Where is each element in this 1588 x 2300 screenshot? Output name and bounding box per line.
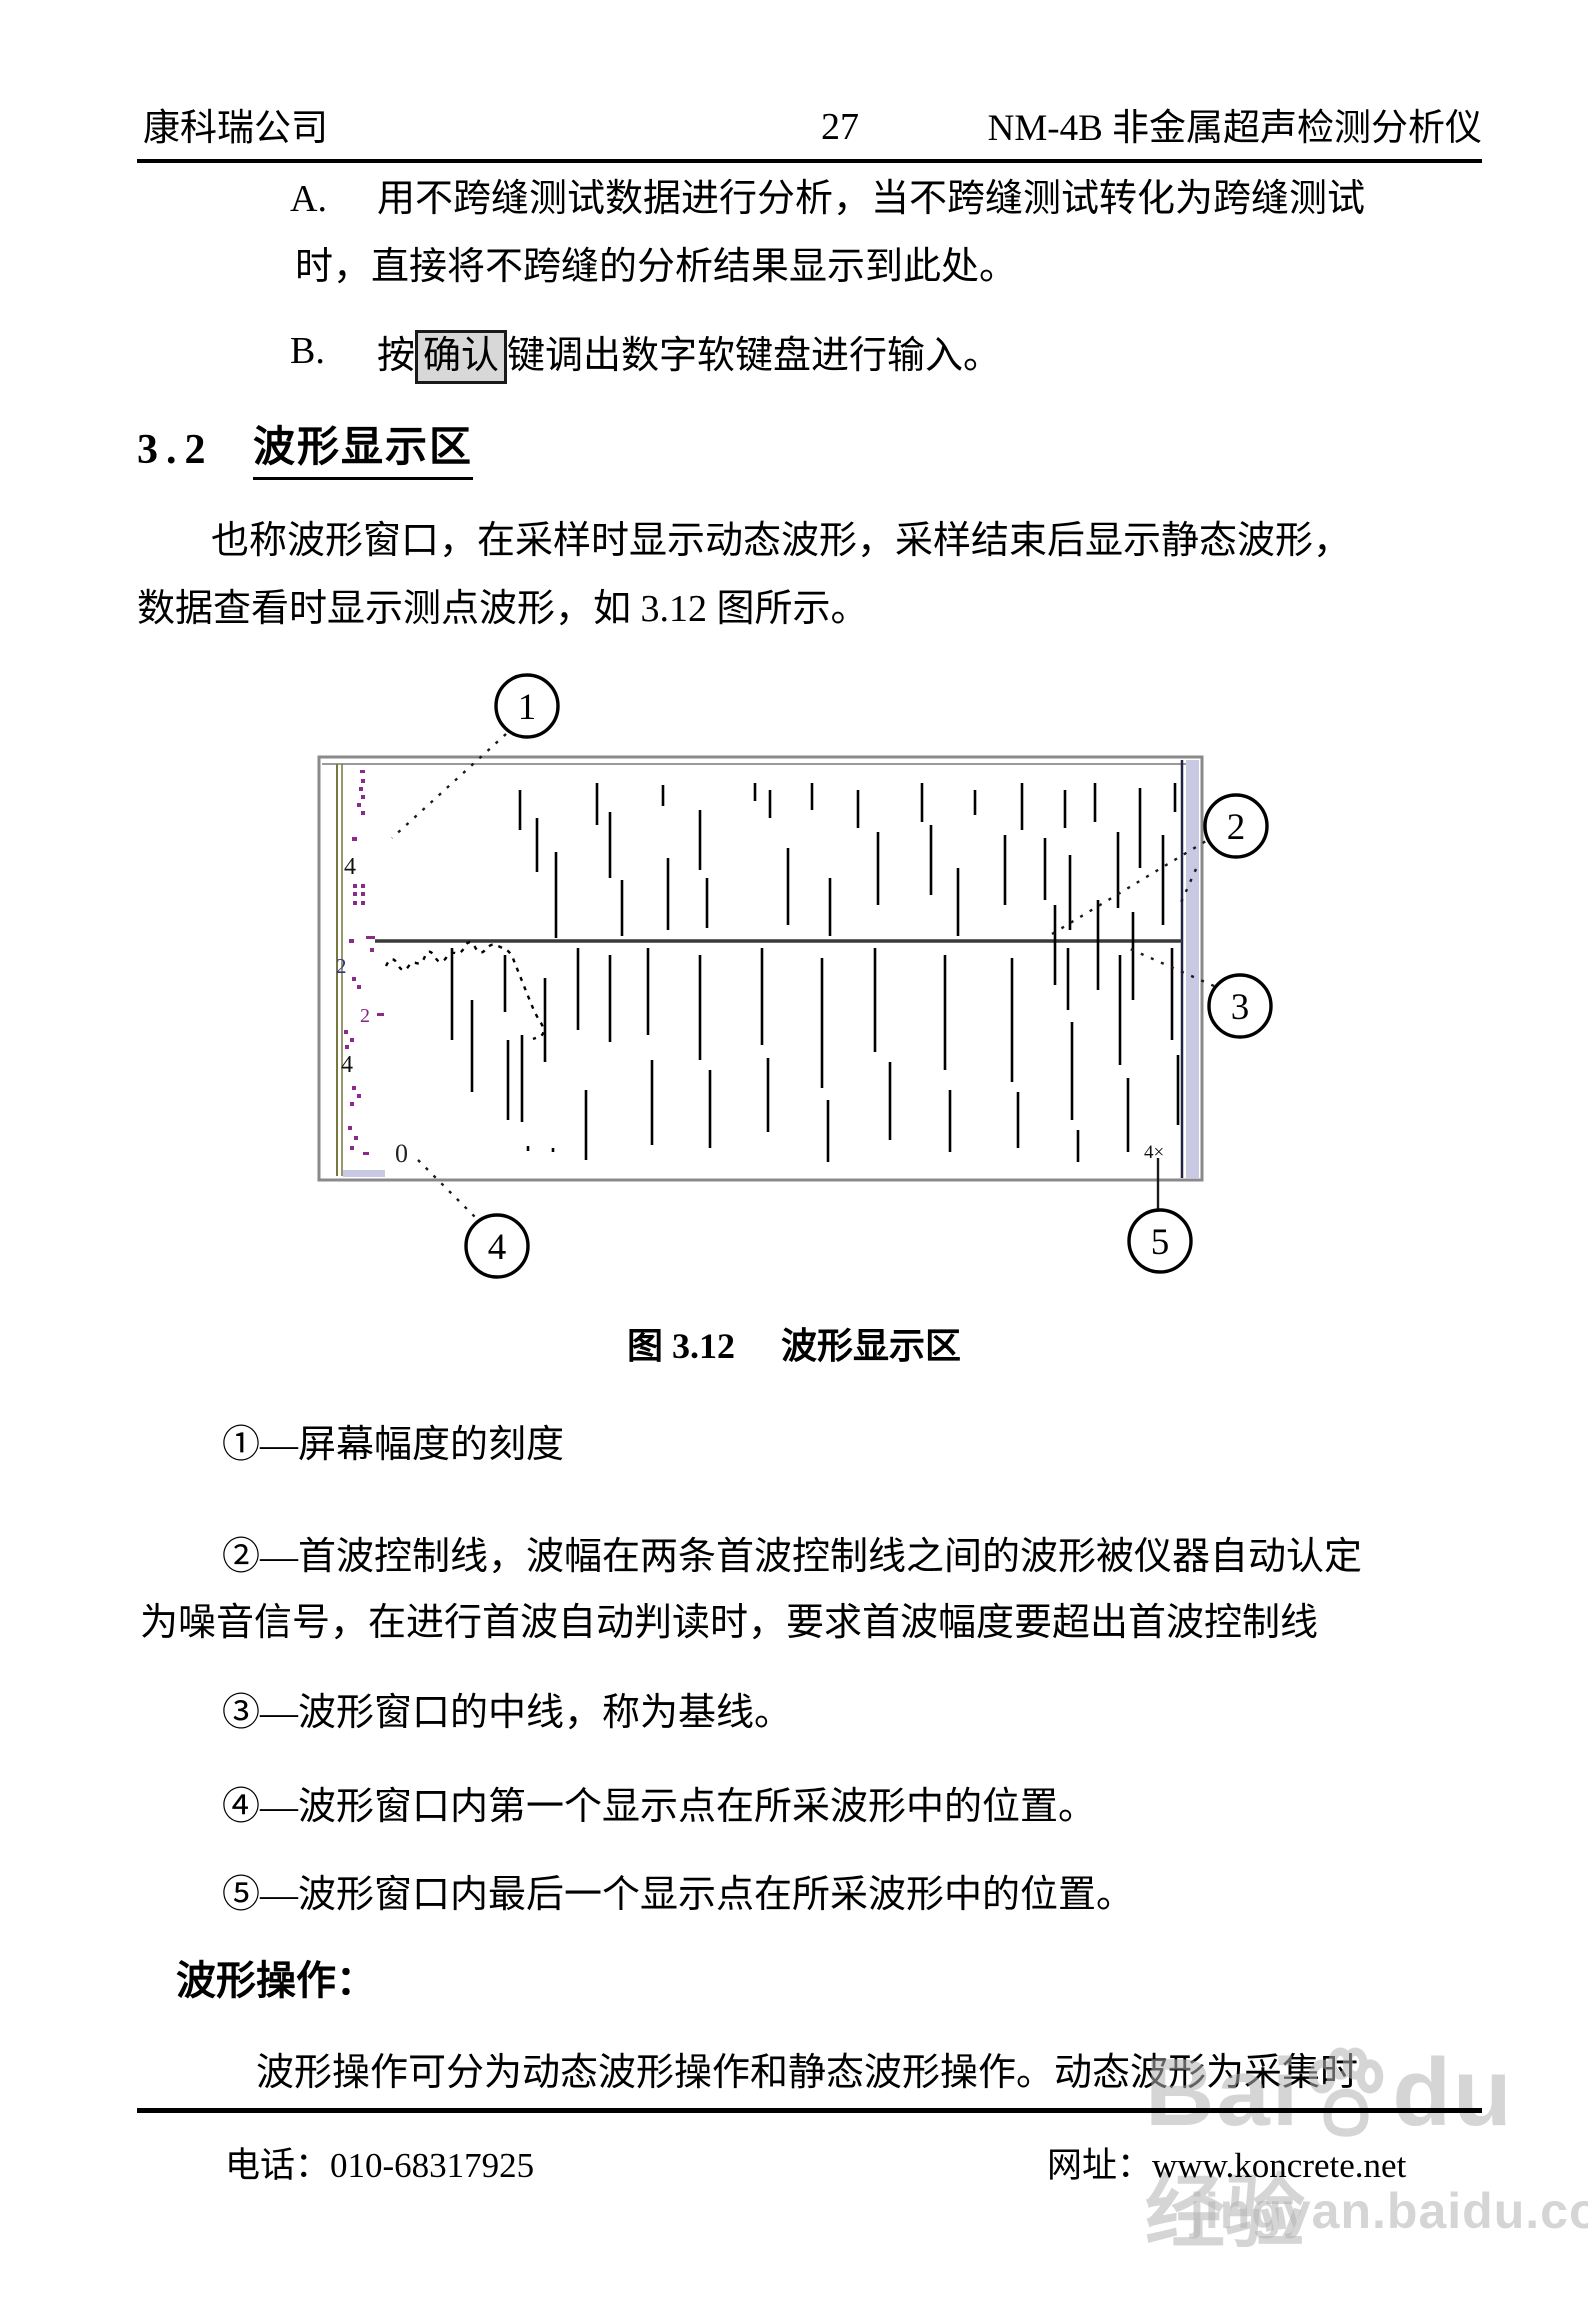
explanation-1: ①—屏幕幅度的刻度 [222,1424,564,1468]
explanation-5: ⑤—波形窗口内最后一个显示点在所采波形中的位置。 [222,1874,1134,1918]
header-company: 康科瑞公司 [143,108,328,151]
header-page-number: 27 [795,106,885,150]
explanation-3: ③—波形窗口的中线，称为基线。 [222,1692,792,1736]
section-number: 3.2 [137,426,214,474]
item-a-line1: 用不跨缝测试数据进行分析，当不跨缝测试转化为跨缝测试 [377,178,1365,222]
svg-text:4: 4 [488,1227,507,1268]
document-page: 康科瑞公司 27 NM-4B 非金属超声检测分析仪 A. 用不跨缝测试数据进行分… [0,0,1588,2300]
section-title: 波形显示区 [253,424,473,480]
item-b-line: 按确认键调出数字软键盘进行输入。 [377,330,1001,384]
svg-text:2: 2 [1227,807,1246,848]
intro-line2: 数据查看时显示测点波形，如 3.12 图所示。 [137,588,869,632]
svg-text:4: 4 [341,1052,353,1078]
explanation-2-line1: ②—首波控制线，波幅在两条首波控制线之间的波形被仪器自动认定 [222,1536,1362,1580]
explanation-4: ④—波形窗口内第一个显示点在所采波形中的位置。 [222,1786,1096,1830]
watermark-brand-left: Bai [1145,2039,1300,2146]
figure-caption-number: 图 3.12 [627,1326,735,1366]
item-b-suffix: 键调出数字软键盘进行输入。 [507,335,1001,377]
baidu-paw-icon [1300,2047,1392,2139]
header-device-title: NM-4B 非金属超声检测分析仪 [988,108,1482,151]
footer-rule [137,2108,1482,2113]
watermark-url: jingyan.baidu.com [1190,2182,1588,2240]
wave-operation-heading: 波形操作： [176,1958,376,2004]
confirm-key-box: 确认 [415,330,507,384]
watermark-brand-right: du [1392,2039,1513,2146]
svg-text:1: 1 [518,687,537,728]
svg-text:2: 2 [360,1005,370,1027]
footer-website: 网址：www.koncrete.net [1047,2146,1406,2186]
figure-caption-title: 波形显示区 [781,1326,961,1366]
explanation-2-line2: 为噪音信号，在进行首波自动判读时，要求首波幅度要超出首波控制线 [140,1602,1318,1646]
item-b-prefix: 按 [377,335,415,377]
bottom-left-scrollbar-piece[interactable] [343,1170,385,1177]
item-a-line2: 时，直接将不跨缝的分析结果显示到此处。 [295,246,1017,290]
right-scrollbar-strip[interactable] [1186,760,1199,1178]
svg-text:2: 2 [336,954,347,978]
figure-3-12-waveform-screenshot: 4224 12345 0 4× [300,640,1320,1300]
first-point-position-label: 0 [395,1139,408,1168]
intro-line1: 也称波形窗口，在采样时显示动态波形，采样结束后显示静态波形， [211,520,1351,564]
header-rule [137,159,1482,163]
svg-text:5: 5 [1151,1222,1170,1263]
item-b-label: B. [290,330,325,374]
svg-text:3: 3 [1231,987,1250,1028]
item-a-label: A. [290,178,327,222]
last-point-position-label: 4× [1144,1142,1164,1163]
figure-caption: 图 3.12波形显示区 [0,1326,1588,1367]
footer-phone: 电话：010-68317925 [225,2146,534,2186]
svg-text:4: 4 [344,854,356,880]
